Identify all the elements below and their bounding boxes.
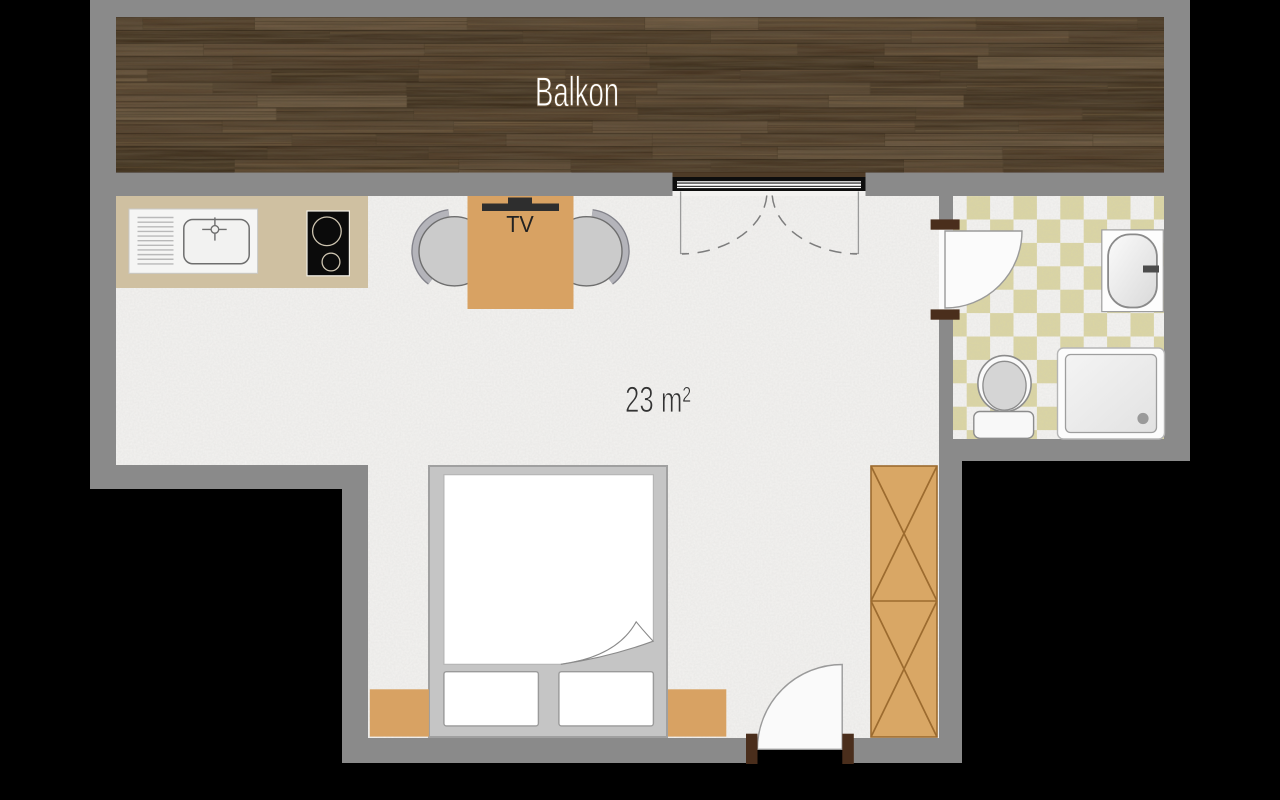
svg-text:TV: TV <box>506 211 534 237</box>
svg-text:Balkon: Balkon <box>535 68 619 115</box>
svg-text:23 m²: 23 m² <box>625 379 691 420</box>
